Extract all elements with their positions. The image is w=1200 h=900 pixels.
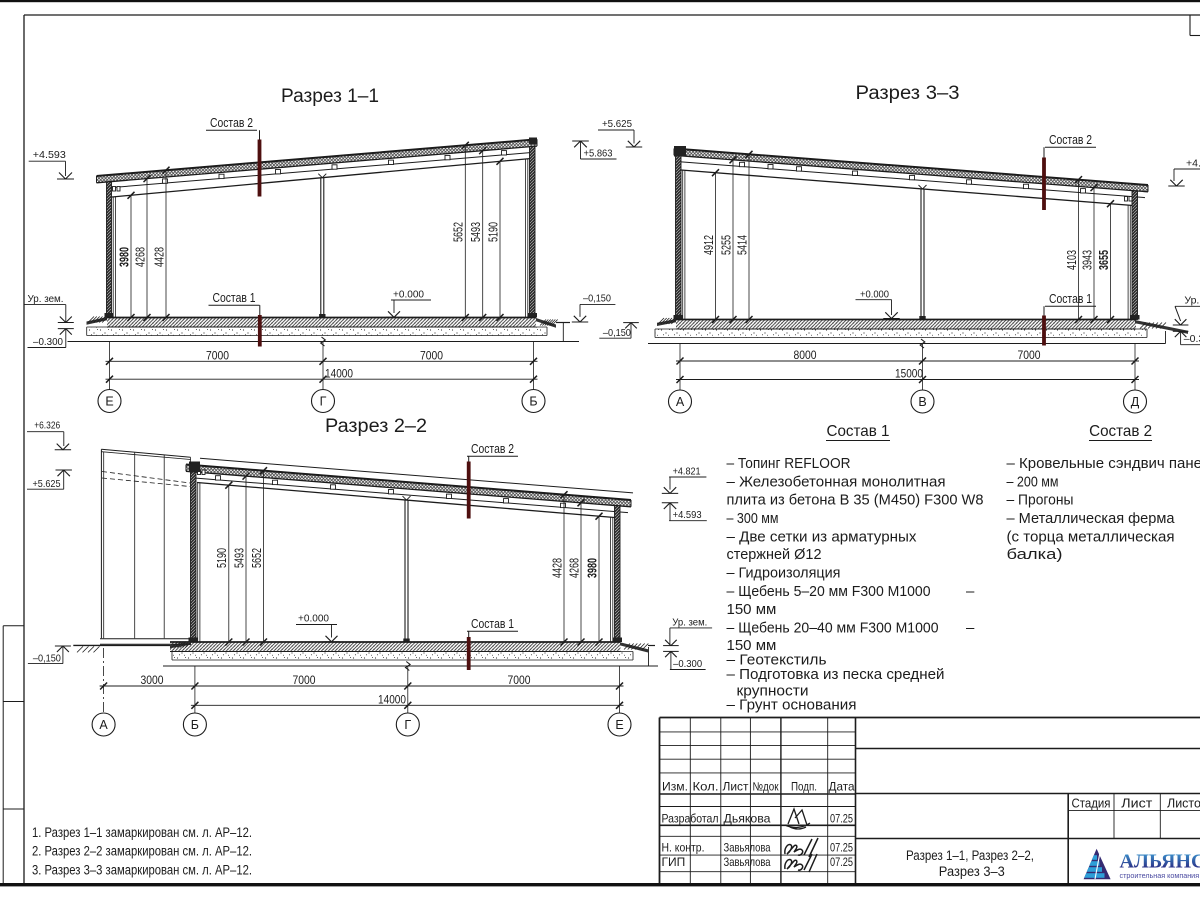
svg-text:Стадия: Стадия (1072, 797, 1111, 811)
svg-text:+5.625: +5.625 (602, 118, 632, 130)
svg-text:+0.000: +0.000 (393, 289, 424, 301)
svg-text:Е: Е (105, 395, 113, 409)
svg-text:Разрез 3–3: Разрез 3–3 (939, 864, 1005, 879)
svg-text:2. Разрез 2–2 замаркирован см.: 2. Разрез 2–2 замаркирован см. л. АР–12. (32, 844, 252, 859)
svg-text:5255: 5255 (719, 235, 733, 255)
svg-text:+4.23: +4.23 (1186, 158, 1200, 170)
svg-text:7000: 7000 (508, 673, 531, 687)
svg-text:14000: 14000 (325, 366, 353, 380)
svg-text:+4.593: +4.593 (33, 149, 66, 161)
svg-text:+5.863: +5.863 (584, 148, 613, 160)
svg-text:Состав 2: Состав 2 (210, 116, 253, 130)
svg-text:№док: №док (753, 780, 780, 794)
svg-text:Д: Д (1131, 395, 1140, 409)
svg-text:Состав 1: Состав 1 (471, 617, 514, 631)
svg-text:+4.593: +4.593 (673, 509, 702, 521)
svg-text:Листов: Листов (1167, 797, 1200, 811)
svg-text:– 300 мм: – 300 мм (727, 510, 779, 527)
svg-text:Б: Б (529, 395, 537, 409)
svg-text:Ур. зем.: Ур. зем. (672, 616, 707, 628)
svg-text:7000: 7000 (420, 348, 443, 362)
svg-text:– Железобетонная монолитная: – Железобетонная монолитная (727, 474, 946, 491)
svg-text:–: – (966, 583, 975, 600)
svg-text:Н. контр.: Н. контр. (662, 841, 705, 855)
svg-text:+6.326: +6.326 (34, 420, 60, 432)
svg-text:Завьялова: Завьялова (724, 855, 771, 869)
svg-text:Г: Г (404, 718, 411, 732)
svg-text:Состав 1: Состав 1 (213, 291, 256, 305)
svg-text:Состав 1: Состав 1 (827, 423, 890, 440)
svg-text:3943: 3943 (1080, 250, 1094, 270)
svg-text:4268: 4268 (133, 247, 147, 267)
svg-text:Подп.: Подп. (791, 780, 817, 794)
svg-text:– 200 мм: – 200 мм (1007, 474, 1059, 491)
svg-text:4428: 4428 (152, 247, 166, 267)
svg-text:5493: 5493 (232, 548, 246, 568)
svg-text:– Подготовка из песка средней: – Подготовка из песка средней (727, 666, 945, 683)
svg-text:3980: 3980 (117, 247, 131, 267)
svg-text:Дата: Дата (829, 780, 855, 794)
svg-text:15000: 15000 (895, 367, 923, 381)
svg-text:– Две сетки из арматурных: – Две сетки из арматурных (727, 529, 918, 546)
svg-text:Изм.: Изм. (662, 780, 688, 794)
svg-text:4428: 4428 (550, 558, 564, 578)
svg-text:Кол.: Кол. (693, 780, 719, 794)
svg-text:–0.300: –0.300 (673, 658, 702, 670)
svg-text:4912: 4912 (702, 235, 716, 255)
svg-text:– Топинг REFLOOR: – Топинг REFLOOR (727, 455, 851, 472)
svg-text:5493: 5493 (469, 222, 483, 242)
svg-text:3. Разрез 3–3 замаркирован см.: 3. Разрез 3–3 замаркирован см. л. АР–12. (32, 863, 252, 878)
svg-text:Разрез 1–1: Разрез 1–1 (281, 86, 379, 107)
svg-text:– Прогоны: – Прогоны (1007, 492, 1074, 509)
svg-text:+0.000: +0.000 (860, 288, 889, 300)
svg-text:стержней Ø12: стержней Ø12 (727, 546, 822, 563)
svg-text:–0.3: –0.3 (1184, 333, 1200, 345)
svg-text:5190: 5190 (486, 222, 500, 242)
svg-text:– Металлическая ферма: – Металлическая ферма (1007, 510, 1176, 527)
svg-text:– Щебень 5–20 мм F300 М1000: – Щебень 5–20 мм F300 М1000 (727, 583, 931, 600)
svg-text:плита из бетона В 35 (М450) F3: плита из бетона В 35 (М450) F300 W8 (727, 492, 984, 509)
svg-text:07.25: 07.25 (830, 855, 853, 869)
svg-text:8000: 8000 (794, 348, 817, 362)
svg-text:Ур. зем.: Ур. зем. (28, 293, 64, 305)
svg-text:А: А (99, 718, 108, 732)
svg-text:–0,150: –0,150 (33, 653, 61, 665)
svg-text:3980: 3980 (585, 558, 599, 578)
svg-text:АЛЬЯНС: АЛЬЯНС (1120, 850, 1200, 872)
svg-text:Состав 1: Состав 1 (1049, 292, 1092, 306)
svg-text:Ур. зе: Ур. зе (1184, 295, 1200, 307)
svg-text:– Щебень 20–40 мм F300 М1000: – Щебень 20–40 мм F300 М1000 (727, 620, 939, 637)
svg-text:7000: 7000 (206, 348, 229, 362)
svg-text:150 мм: 150 мм (727, 601, 777, 618)
svg-text:Разработал: Разработал (662, 812, 719, 826)
svg-text:Состав 2: Состав 2 (1089, 423, 1152, 440)
svg-text:5652: 5652 (250, 548, 264, 568)
svg-text:Состав 2: Состав 2 (1049, 133, 1092, 147)
svg-text:(с торца металлическая: (с торца металлическая (1007, 529, 1175, 546)
svg-text:–0.300: –0.300 (33, 336, 63, 348)
svg-text:– Кровельные сэндвич панели: – Кровельные сэндвич панели (1007, 455, 1200, 472)
svg-text:Разрез 2–2: Разрез 2–2 (325, 416, 427, 437)
svg-text:– Гидроизоляция: – Гидроизоляция (727, 565, 841, 582)
svg-text:07.25: 07.25 (830, 812, 853, 826)
svg-text:5190: 5190 (215, 548, 229, 568)
svg-text:В: В (918, 395, 926, 409)
svg-text:Лист: Лист (723, 780, 749, 794)
svg-text:3655: 3655 (1097, 250, 1111, 270)
svg-text:– Грунт основания: – Грунт основания (727, 697, 857, 714)
svg-text:5414: 5414 (735, 235, 749, 255)
svg-text:3000: 3000 (141, 673, 164, 687)
svg-text:А: А (676, 395, 685, 409)
svg-text:+0.000: +0.000 (298, 613, 329, 625)
svg-text:7000: 7000 (1018, 348, 1041, 362)
svg-text:1. Разрез 1–1 замаркирован см.: 1. Разрез 1–1 замаркирован см. л. АР–12. (32, 825, 252, 840)
svg-text:4268: 4268 (567, 558, 581, 578)
svg-text:–: – (966, 620, 975, 637)
svg-text:Завьялова: Завьялова (724, 841, 771, 855)
svg-text:07.25: 07.25 (830, 841, 853, 855)
svg-text:Г: Г (320, 395, 327, 409)
svg-text:Е: Е (615, 718, 623, 732)
svg-text:14000: 14000 (378, 692, 406, 706)
svg-text:5652: 5652 (452, 222, 466, 242)
svg-text:4103: 4103 (1065, 250, 1079, 270)
svg-text:+4.821: +4.821 (673, 466, 701, 478)
svg-text:–0,150: –0,150 (583, 293, 611, 305)
svg-text:Разрез 3–3: Разрез 3–3 (856, 83, 960, 104)
svg-text:строительная компания: строительная компания (1120, 871, 1200, 880)
svg-text:Состав 2: Состав 2 (471, 442, 514, 456)
svg-text:–0,150: –0,150 (603, 327, 631, 339)
svg-text:+5.625: +5.625 (33, 478, 61, 490)
svg-text:ГИП: ГИП (662, 855, 686, 869)
svg-text:7000: 7000 (293, 673, 316, 687)
svg-text:Дьякова: Дьякова (724, 812, 771, 826)
svg-text:Разрез 1–1, Разрез 2–2,: Разрез 1–1, Разрез 2–2, (906, 848, 1034, 863)
svg-text:Лист: Лист (1121, 797, 1152, 811)
svg-text:балка): балка) (1007, 546, 1063, 563)
svg-text:Б: Б (191, 718, 199, 732)
